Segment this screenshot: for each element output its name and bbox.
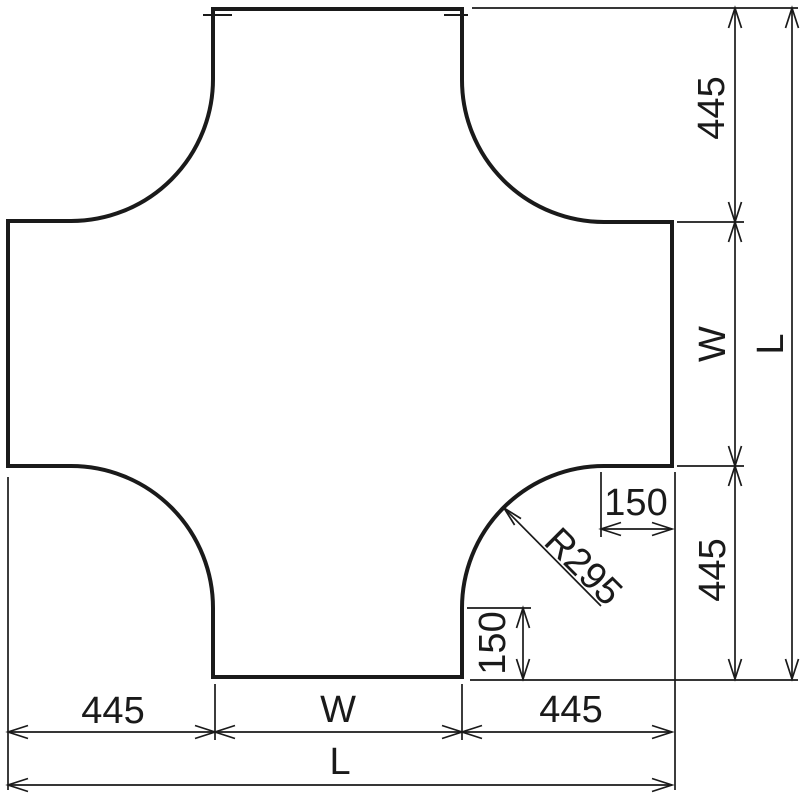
dim-label-right-l: L (750, 333, 792, 354)
dim-label-bottom-l: L (329, 741, 350, 783)
extension-lines (8, 8, 798, 790)
dim-label-right-445-bottom: 445 (692, 538, 734, 601)
dim-label-150-horizontal: 150 (604, 482, 667, 524)
dim-label-150-vertical: 150 (472, 611, 514, 674)
cross-piece-drawing: 445 W 445 L 445 W 445 L 150 150 R295 (0, 0, 800, 800)
dimension-150-horizontal (601, 523, 672, 536)
dim-label-bottom-445-left: 445 (81, 690, 144, 732)
technical-drawing-page: 445 W 445 L 445 W 445 L 150 150 R295 (0, 0, 800, 800)
dim-label-right-445-top: 445 (691, 76, 733, 139)
dim-label-right-w: W (692, 326, 734, 362)
dimension-150-vertical (517, 608, 530, 679)
dim-label-bottom-445-right: 445 (539, 689, 602, 731)
dim-label-bottom-w: W (320, 689, 356, 731)
